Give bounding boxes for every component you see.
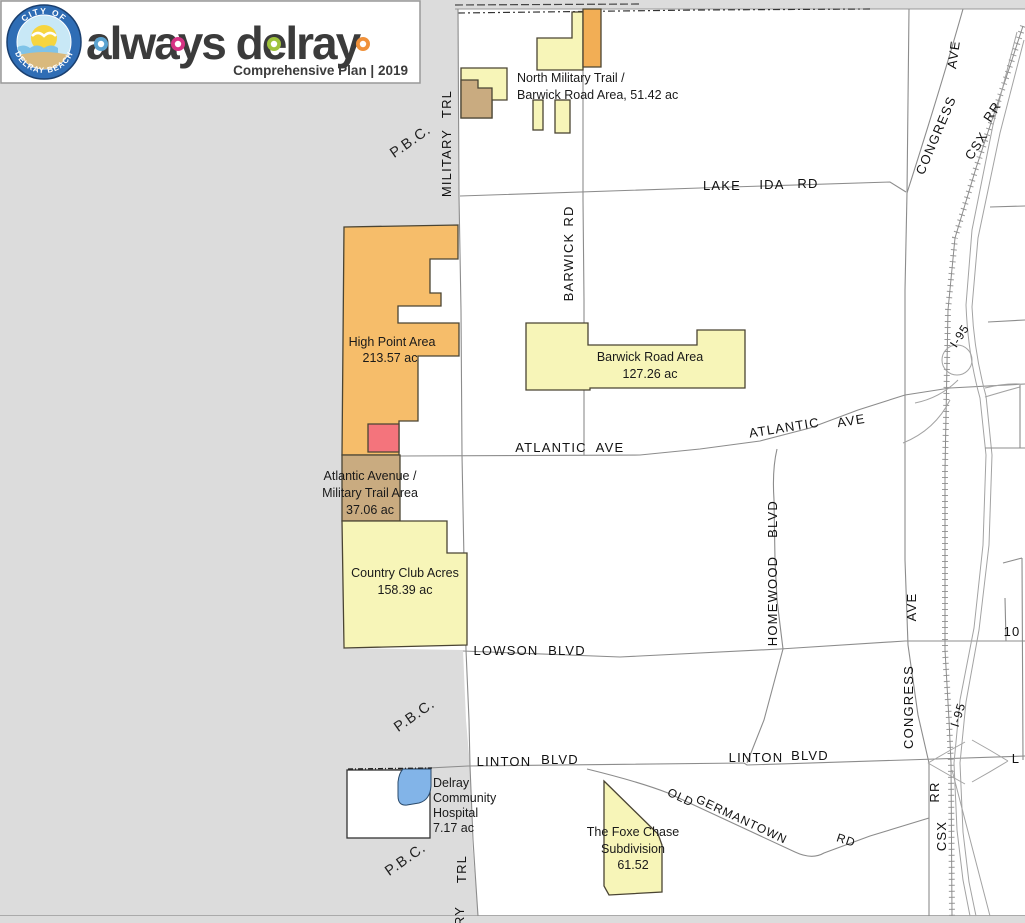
north-military-parcel-2 [555,100,570,133]
military-trl-label-bottom-1: MILITARY [452,906,467,923]
country-club-label-2: 158.39 ac [378,583,433,597]
military-trl-label-top-2: TRL [439,90,454,118]
north-military-area-yellow [537,12,583,70]
linton-blvd-label-e-2: BLVD [791,748,829,763]
congress-ave-label-n-2: AVE [944,39,963,69]
city-seal: CITY OF DELRAY BEACH [7,5,81,79]
congress-ave-label-s-1: CONGRESS [901,665,916,749]
congress-ave-label-s-2: AVE [904,593,919,622]
cutoff-label: L [1012,751,1020,766]
north-military-label-2: Barwick Road Area, 51.42 ac [517,88,678,102]
logo-dot-blue-hole [98,41,104,47]
csx-rr-label-s-1: CSX [934,821,949,851]
atlantic-avenue-road [400,384,1025,456]
i95-road-east [960,40,1024,916]
atlantic-ave-label-w-2: AVE [596,440,625,455]
logo-dot-green-hole [271,41,277,47]
linton-blvd-label-w-2: BLVD [541,752,579,767]
lake-ida-road [460,182,906,196]
north-military-parcel-1 [533,100,543,130]
linton-blvd-label-e-1: LINTON [729,750,784,765]
military-trl-label-bottom-2: TRL [454,855,469,883]
high-point-label-2: 213.57 ac [363,351,418,365]
atlantic-military-label-1: Atlantic Avenue / [324,469,417,483]
high-point-red-parcel [368,424,399,452]
lake-ida-label-1: LAKE [703,178,741,193]
atlantic-military-label-3: 37.06 ac [346,503,394,517]
barwick-rd-label-2: RD [561,205,576,226]
hospital-label-2: Community [433,791,497,805]
csx-rr-label-n-2: RR [980,99,1004,125]
hospital-label-4: 7.17 ac [433,821,474,835]
csx-railroad-line [945,26,1023,916]
lake-ida-label-2: IDA [759,177,784,192]
lowson-blvd-label-2: BLVD [548,643,586,658]
atlantic-ave-label-e-1: ATLANTIC [748,415,821,441]
csx-rr-label-s-2: RR [927,781,942,802]
atlantic-ave-label-w-1: ATLANTIC [515,440,586,455]
logo-dot-pink-hole [175,41,181,47]
city-boundary-dashdot [458,9,870,13]
homewood-blvd-label-2: BLVD [765,500,780,538]
hospital-label-1: Delray [433,776,470,790]
old-germantown-label-3: RD [835,831,858,850]
logo-wordmark: always delray [86,17,362,69]
north-military-label-1: North Military Trail / [517,71,625,85]
foxe-chase-label-1: The Foxe Chase [587,825,679,839]
homewood-blvd-label-1: HOMEWOOD [765,556,780,646]
linton-blvd-label-w-1: LINTON [477,754,532,769]
csx-railroad-ticks [945,26,1023,916]
county-strip-bottom [0,915,1025,923]
lowson-blvd-label-1: LOWSON [474,643,539,658]
atlantic-military-label-2: Military Trail Area [322,486,418,500]
military-trl-label-top-1: MILITARY [439,129,454,197]
foxe-chase-label-3: 61.52 [617,858,648,872]
barwick-area-label-2: 127.26 ac [623,367,678,381]
plan-tagline: Comprehensive Plan | 2019 [233,63,408,78]
north-military-area-orange [583,9,601,67]
hospital-label-3: Hospital [433,806,478,820]
hospital-area [398,769,431,805]
annexation-map: North Military Trail / Barwick Road Area… [0,0,1025,923]
tenth-street-label: 10 [1004,624,1021,639]
foxe-chase-label-2: Subdivision [601,842,665,856]
old-germantown-label-1: OLD [665,785,696,809]
atlantic-interchange-ramps [903,380,1020,443]
barwick-rd-label-1: BARWICK [561,233,576,302]
atlantic-ave-label-e-2: AVE [836,411,867,430]
logo-dot-orange-hole [360,41,366,47]
barwick-area-label-1: Barwick Road Area [597,350,703,364]
lake-ida-label-3: RD [797,176,818,191]
map-figure: North Military Trail / Barwick Road Area… [0,0,1025,923]
plan-header: CITY OF DELRAY BEACH always delray Compr… [0,0,421,84]
high-point-label-1: High Point Area [349,335,436,349]
congress-ave-label-n-1: CONGRESS [913,94,960,177]
old-germantown-label-2: GERMANTOWN [694,792,790,847]
country-club-label-1: Country Club Acres [351,566,459,580]
